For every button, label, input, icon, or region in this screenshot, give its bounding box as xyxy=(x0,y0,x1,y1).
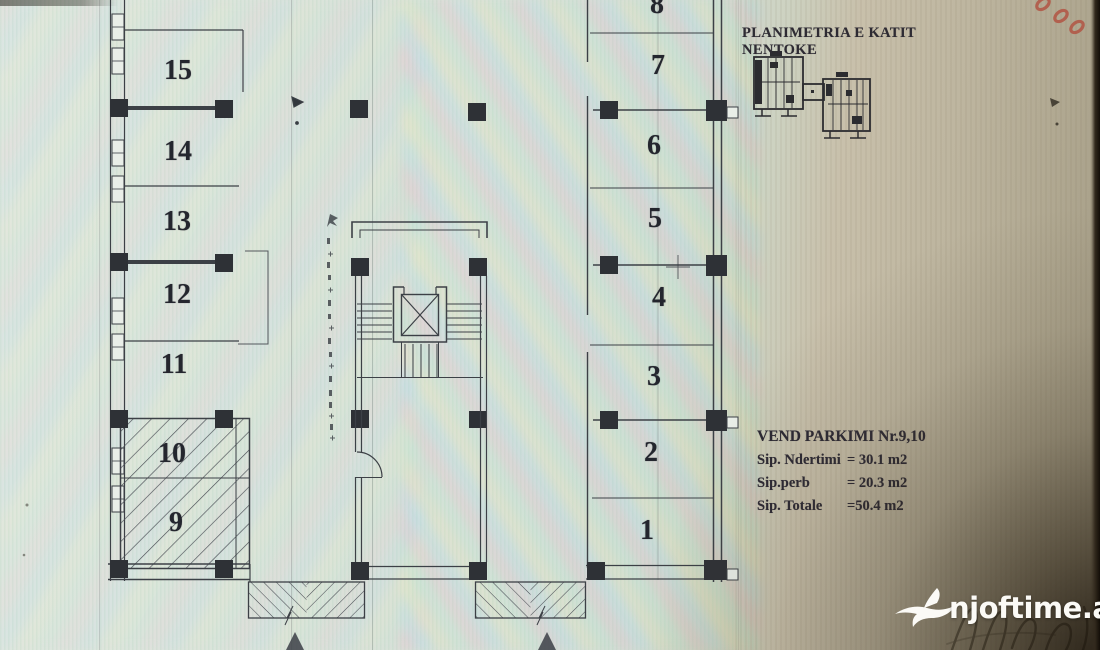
info-label: Sip. Totale xyxy=(757,495,845,518)
parking-spot-label-8: 8 xyxy=(637,0,677,22)
watermark-text: njoftime.al xyxy=(949,591,1100,625)
scan-edge-top-left xyxy=(0,0,118,6)
parking-spot-label-7: 7 xyxy=(638,49,678,83)
parking-info-row: Sip. Ndertimi = 30.1 m2 xyxy=(757,449,942,472)
parking-info-row: Sip. Totale =50.4 m2 xyxy=(757,495,942,518)
floor-plan-drawing xyxy=(0,0,1100,650)
watermark: njoftime.al xyxy=(893,583,1100,633)
key-plan-icon xyxy=(754,51,870,138)
elevator-shaft xyxy=(394,287,447,342)
small-arrow-mark xyxy=(292,97,303,107)
info-value: = 30.1 m2 xyxy=(847,449,907,472)
parking-spot-label-10: 10 xyxy=(152,437,192,471)
survey-cross-mark xyxy=(666,255,690,279)
parking-info-row: Sip.perb = 20.3 m2 xyxy=(757,472,942,495)
ink-speck xyxy=(1050,98,1060,107)
parking-info-heading: VEND PARKIMI Nr.9,10 xyxy=(757,428,942,446)
dimension-chain-marks xyxy=(327,214,338,441)
info-value: = 20.3 m2 xyxy=(847,472,907,495)
red-ink-marks xyxy=(1035,0,1086,35)
entrance-arrow xyxy=(538,632,556,650)
parking-spot-label-15: 15 xyxy=(158,54,198,88)
parking-spot-label-3: 3 xyxy=(634,360,674,394)
info-label: Sip.perb xyxy=(757,472,845,495)
info-value: =50.4 m2 xyxy=(847,495,904,518)
parking-spot-label-13: 13 xyxy=(157,205,197,239)
parking-info-block: VEND PARKIMI Nr.9,10 Sip. Ndertimi = 30.… xyxy=(757,428,942,518)
info-label: Sip. Ndertimi xyxy=(757,449,845,472)
structural-columns xyxy=(350,100,487,580)
north-figure-mark xyxy=(327,214,338,227)
plan-title: PLANIMETRIA E KATIT NENTOKE xyxy=(742,25,972,59)
door-swing-arc xyxy=(357,452,382,477)
parking-spot-label-9: 9 xyxy=(156,506,196,540)
parking-spot-label-5: 5 xyxy=(635,202,675,236)
entrance-arrow xyxy=(286,632,304,650)
parking-spot-label-1: 1 xyxy=(627,514,667,548)
parking-spot-label-6: 6 xyxy=(634,129,674,163)
parking-spot-label-12: 12 xyxy=(157,278,197,312)
structural-columns xyxy=(600,100,727,580)
entrance-ramps xyxy=(249,562,606,650)
scanned-floor-plan-photo: 15 14 13 12 11 10 9 8 7 6 5 4 3 2 1 PLAN… xyxy=(0,0,1100,650)
stairwell-core xyxy=(292,97,487,580)
parking-spot-label-2: 2 xyxy=(631,436,671,470)
parking-spot-label-11: 11 xyxy=(154,348,194,382)
parking-spot-label-4: 4 xyxy=(639,281,679,315)
parking-spot-label-14: 14 xyxy=(158,135,198,169)
